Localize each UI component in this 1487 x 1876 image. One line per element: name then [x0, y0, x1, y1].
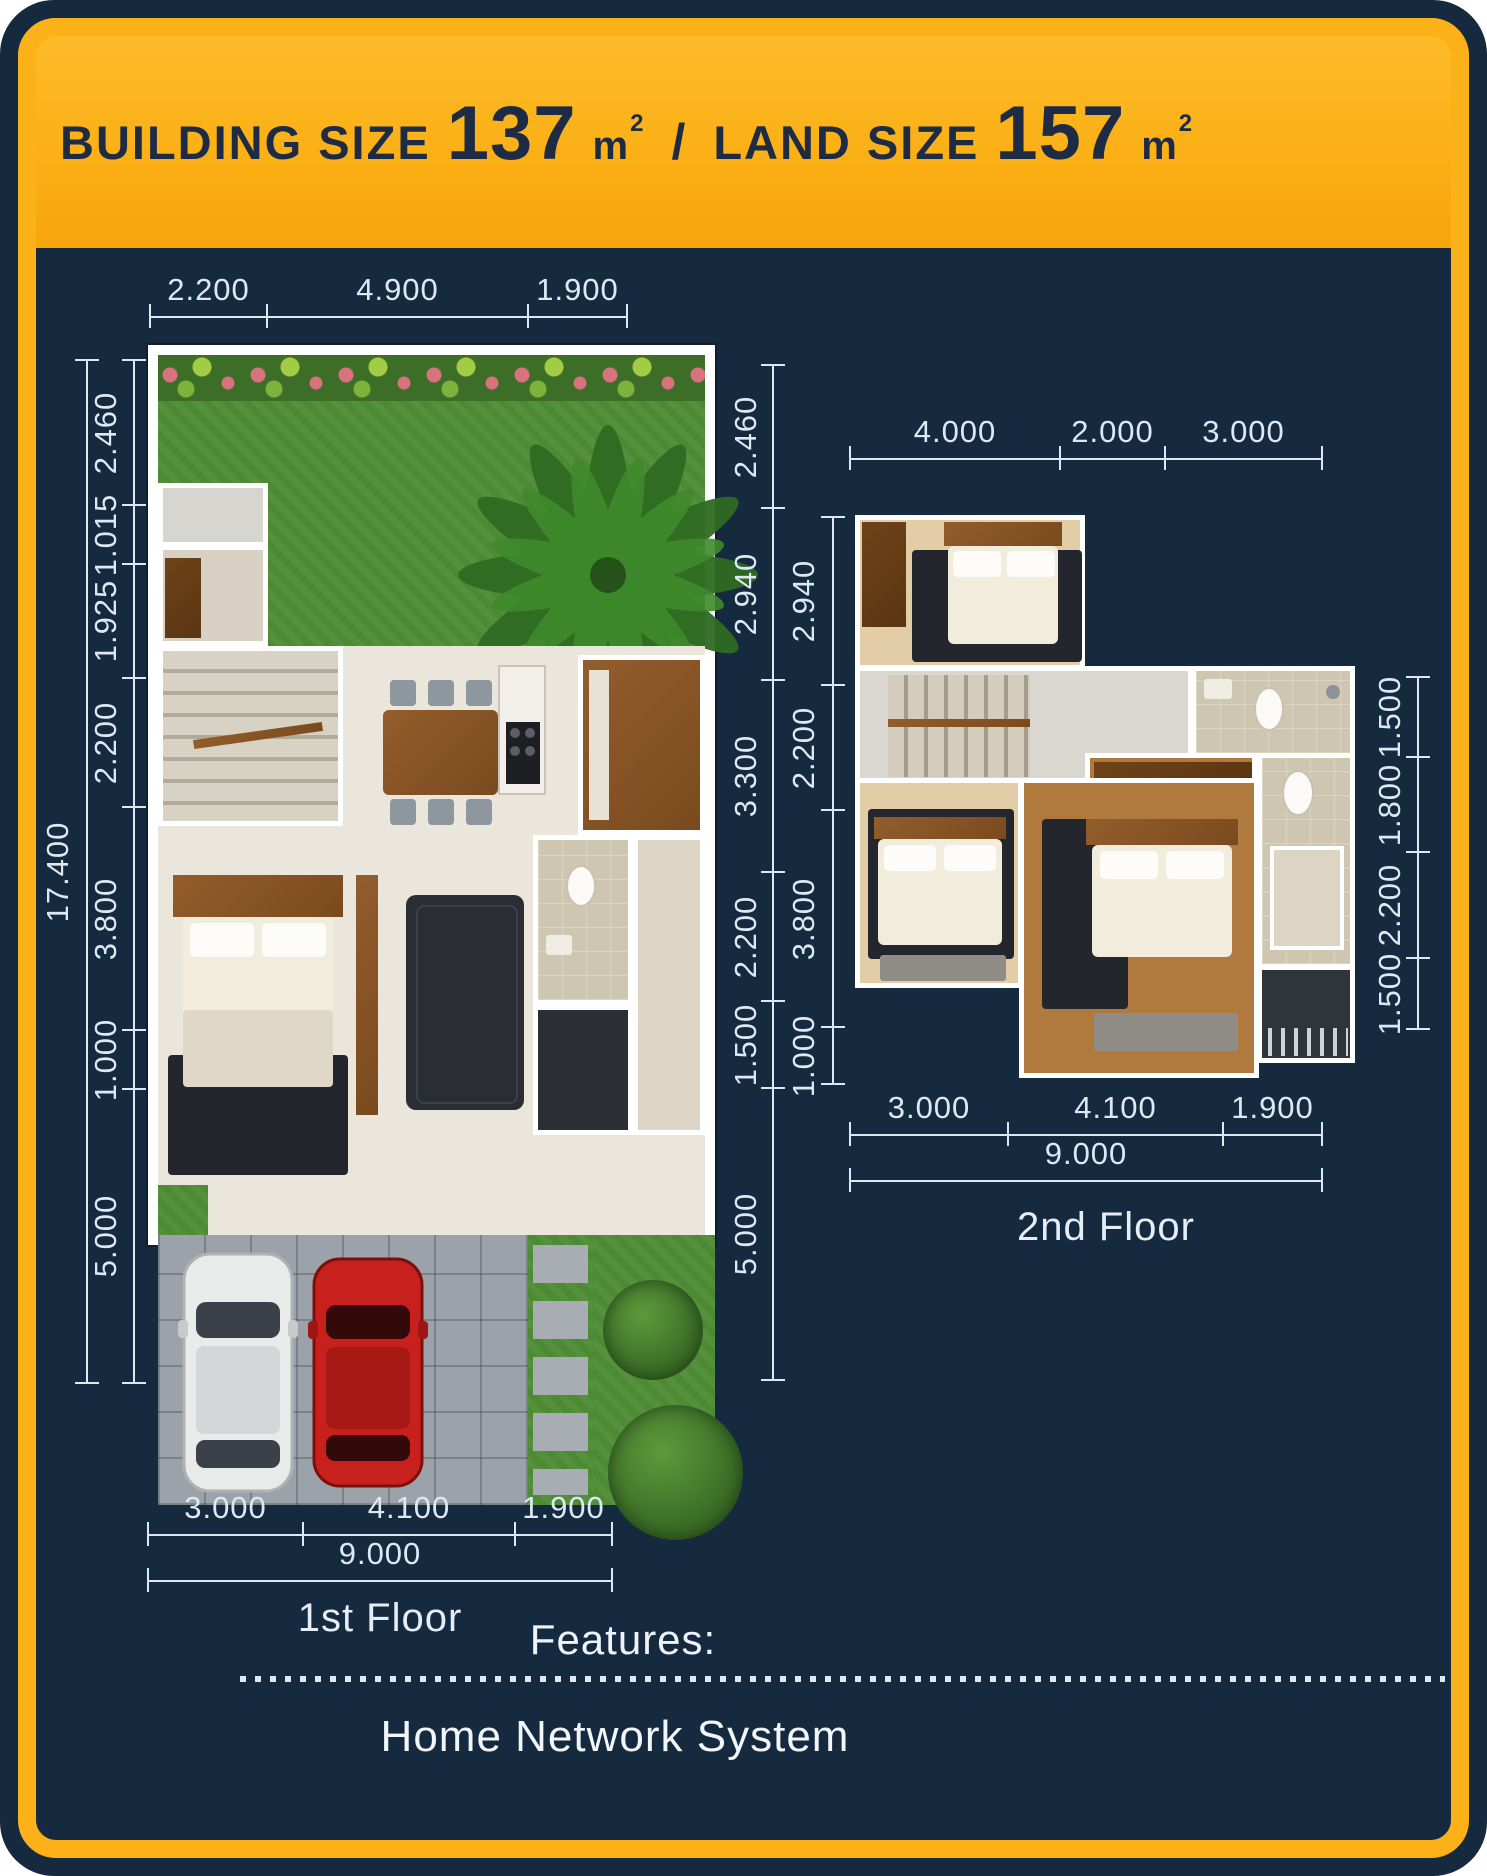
dining-chair [390, 680, 416, 706]
dimension-tick [122, 563, 146, 565]
dimension-tick [849, 1122, 851, 1146]
white-car [178, 1250, 298, 1495]
dimension-label: 2.200 [88, 701, 124, 784]
dining-chair [466, 799, 492, 825]
dimension-tick [1059, 446, 1061, 470]
toilet-floor2b [1282, 770, 1314, 816]
dimension-label: 3.300 [728, 735, 764, 818]
feature-item: Home Network System [381, 1712, 850, 1762]
bedroom2-pillow [884, 845, 936, 871]
dimension-tick [147, 1522, 149, 1546]
dimension-label: 1.925 [88, 580, 124, 663]
dimension-tick [761, 507, 785, 509]
land-size-value: 157 [995, 90, 1125, 177]
land-size-label: LAND SIZE [713, 115, 979, 170]
sofa-cushions [416, 905, 518, 1104]
dimension-tick [821, 1083, 845, 1085]
floor1-house-outline [148, 345, 715, 1245]
dimension-tick [1406, 756, 1430, 758]
dimension-label: 1.000 [88, 1018, 124, 1101]
dimension-label: 9.000 [339, 1536, 422, 1572]
dimension-label: 4.100 [368, 1490, 451, 1526]
bedroom1-pillow [953, 551, 1001, 577]
dimension-label: 2.200 [728, 895, 764, 978]
dining-chair [390, 799, 416, 825]
bathroom2-1 [1191, 666, 1355, 758]
dimension-label: 1.900 [536, 272, 619, 308]
toilet-floor2a [1254, 687, 1284, 731]
dimension-tick [1222, 1122, 1224, 1146]
dimension-label: 2.000 [1071, 414, 1154, 450]
balcony-grate [1268, 1028, 1348, 1056]
bed-pillow [190, 923, 254, 957]
dimension-tick [122, 504, 146, 506]
garden-bush [603, 1280, 703, 1380]
dimension-tick [122, 1088, 146, 1090]
page-title: BUILDING SIZE 137 m2 / LAND SIZE 157 m2 [18, 90, 1194, 177]
wardrobe [862, 522, 906, 627]
dimension-label: 1.500 [1372, 676, 1408, 759]
dimension-line [133, 360, 135, 1383]
bed-blanket [183, 1010, 333, 1087]
dimension-label: 2.200 [786, 706, 822, 789]
dimension-label: 3.800 [786, 877, 822, 960]
floor1-right-dimensions: 2.4602.9403.3002.2001.5005.000 [722, 365, 778, 1380]
floor2-plan [855, 515, 1355, 1085]
sink-floor2a [1204, 679, 1232, 699]
floor2-top-dimensions: 4.0002.0003.000 [850, 424, 1322, 472]
kitchen-cabinets [578, 655, 705, 835]
dimension-tick [1321, 446, 1323, 470]
dimension-tick [1406, 957, 1430, 959]
floor2-caption: 2nd Floor [1017, 1205, 1195, 1250]
kitchen-island [498, 665, 546, 795]
dimension-tick [1406, 676, 1430, 678]
garden-flowerbed [158, 355, 705, 401]
kitchen-counter [589, 670, 609, 820]
dimension-tick [122, 359, 146, 361]
sink [546, 935, 572, 955]
dimension-line [148, 1580, 612, 1582]
garden-tree [608, 1405, 743, 1540]
dimension-tick [122, 677, 146, 679]
dimension-tick [821, 684, 845, 686]
bed-pillow [262, 923, 326, 957]
floor2-right-dimensions: 1.5001.8002.2001.500 [1362, 677, 1422, 1029]
dimension-label: 3.800 [88, 877, 124, 960]
dimension-label: 2.940 [728, 553, 764, 636]
dimension-label: 5.000 [88, 1195, 124, 1278]
dimension-label: 17.400 [40, 821, 76, 922]
dimension-label: 3.000 [1202, 414, 1285, 450]
floor1-top-dimensions: 2.2004.9001.900 [150, 282, 627, 330]
building-size-value: 137 [447, 90, 577, 177]
bedroom2 [855, 778, 1023, 988]
dimension-line [832, 517, 834, 1084]
stair-rail [193, 722, 323, 749]
building-size-unit: m2 [593, 110, 646, 169]
dimension-label: 9.000 [1045, 1136, 1128, 1172]
sofa [406, 895, 524, 1110]
dimension-label: 2.460 [88, 391, 124, 474]
dimension-tick [266, 304, 268, 328]
dimension-tick [761, 364, 785, 366]
dimension-line [850, 1180, 1322, 1182]
floor1-plan [148, 345, 715, 1505]
bedroom1-pillow [1007, 551, 1055, 577]
entry-room [158, 483, 268, 547]
dimension-tick [302, 1522, 304, 1546]
bathroom2-2 [1257, 753, 1355, 969]
dimension-tick [1406, 851, 1430, 853]
kitchen-stove [506, 722, 540, 784]
dimension-line [1417, 677, 1419, 1029]
floor2-overall-width-dimension: 9.000 [850, 1146, 1322, 1194]
bedroom2-pillow [944, 845, 996, 871]
dimension-tick [626, 304, 628, 328]
stair-rail-floor2 [888, 719, 1030, 727]
bathroom-floor1 [533, 835, 633, 1005]
master-pillow [1100, 851, 1158, 879]
features-label: Features: [530, 1616, 716, 1664]
shower-head [1326, 685, 1340, 699]
dimension-tick [147, 1568, 149, 1592]
dimension-tick [122, 806, 146, 808]
dimension-tick [611, 1568, 613, 1592]
dimension-label: 2.200 [167, 272, 250, 308]
building-size-label: BUILDING SIZE [60, 115, 431, 170]
dimension-label: 1.500 [728, 1003, 764, 1086]
land-size-unit: m2 [1141, 110, 1194, 169]
header-band: BUILDING SIZE 137 m2 / LAND SIZE 157 m2 [18, 18, 1469, 248]
dimension-label: 2.460 [728, 395, 764, 478]
dimension-label: 1.900 [522, 1490, 605, 1526]
dimension-label: 1.000 [786, 1014, 822, 1097]
dimension-tick [821, 1026, 845, 1028]
dimension-label: 1.015 [88, 493, 124, 576]
dining-chair [428, 799, 454, 825]
dimension-tick [1406, 1028, 1430, 1030]
dimension-line [150, 316, 627, 318]
dimension-tick [122, 1382, 146, 1384]
shower-box [1270, 846, 1344, 950]
storage-cabinet [165, 558, 201, 638]
dimension-tick [821, 516, 845, 518]
bedroom1 [855, 515, 1085, 670]
stepping-pads [533, 1245, 588, 1495]
dimension-label: 5.000 [728, 1193, 764, 1276]
poster-background: BUILDING SIZE 137 m2 / LAND SIZE 157 m2 [0, 0, 1487, 1876]
bedroom1-headboard [944, 522, 1062, 546]
dimension-label: 1.500 [1372, 952, 1408, 1035]
dimension-label: 3.000 [184, 1490, 267, 1526]
dimension-label: 4.900 [356, 272, 439, 308]
features-divider [240, 1676, 1445, 1682]
master-headboard [1086, 819, 1238, 845]
dimension-tick [849, 1168, 851, 1192]
dimension-tick [122, 1029, 146, 1031]
dimension-tick [761, 1087, 785, 1089]
floor1-left-dimensions: 2.4601.0151.9252.2003.8001.0005.000 [80, 360, 140, 1383]
dining-table [383, 710, 498, 795]
dimension-label: 3.000 [888, 1090, 971, 1126]
dimension-tick [1321, 1122, 1323, 1146]
bedroom2-headboard [874, 817, 1006, 839]
red-car [308, 1255, 428, 1490]
shower-room [533, 1005, 633, 1135]
dimension-label: 1.900 [1231, 1090, 1314, 1126]
balcony [1257, 965, 1355, 1063]
master-pillow [1166, 851, 1224, 879]
dimension-tick [611, 1522, 613, 1546]
bedroom2-carpet [880, 955, 1006, 981]
staircase [158, 646, 343, 826]
dimension-label: 2.940 [786, 560, 822, 643]
path-grass [528, 1235, 593, 1505]
storage-room [158, 545, 268, 646]
dimension-tick [849, 446, 851, 470]
dimension-line [850, 458, 1322, 460]
floor1-overall-width-dimension: 9.000 [148, 1546, 612, 1594]
dimension-label: 4.100 [1074, 1090, 1157, 1126]
dining-chair [466, 680, 492, 706]
dimension-tick [1321, 1168, 1323, 1192]
toilet [566, 865, 596, 907]
side-room [633, 835, 705, 1135]
dimension-tick [1007, 1122, 1009, 1146]
dimension-tick [761, 1379, 785, 1381]
floor1-caption: 1st Floor [298, 1596, 463, 1641]
dimension-tick [821, 809, 845, 811]
master-bedroom [1019, 778, 1259, 1078]
bed-headboard [173, 875, 343, 917]
rear-patio-grass [158, 1185, 208, 1235]
dining-chair [428, 680, 454, 706]
master-carpet [1094, 1013, 1238, 1051]
dimension-label: 1.800 [1372, 763, 1408, 846]
dimension-label: 2.200 [1372, 864, 1408, 947]
tv-cabinet [356, 875, 378, 1115]
dimension-label: 4.000 [914, 414, 997, 450]
dimension-tick [527, 304, 529, 328]
dimension-tick [1164, 446, 1166, 470]
dimension-tick [514, 1522, 516, 1546]
title-separator: / [661, 113, 697, 171]
floor2-left-dimensions: 2.9402.2003.8001.000 [778, 517, 838, 1084]
dimension-tick [149, 304, 151, 328]
